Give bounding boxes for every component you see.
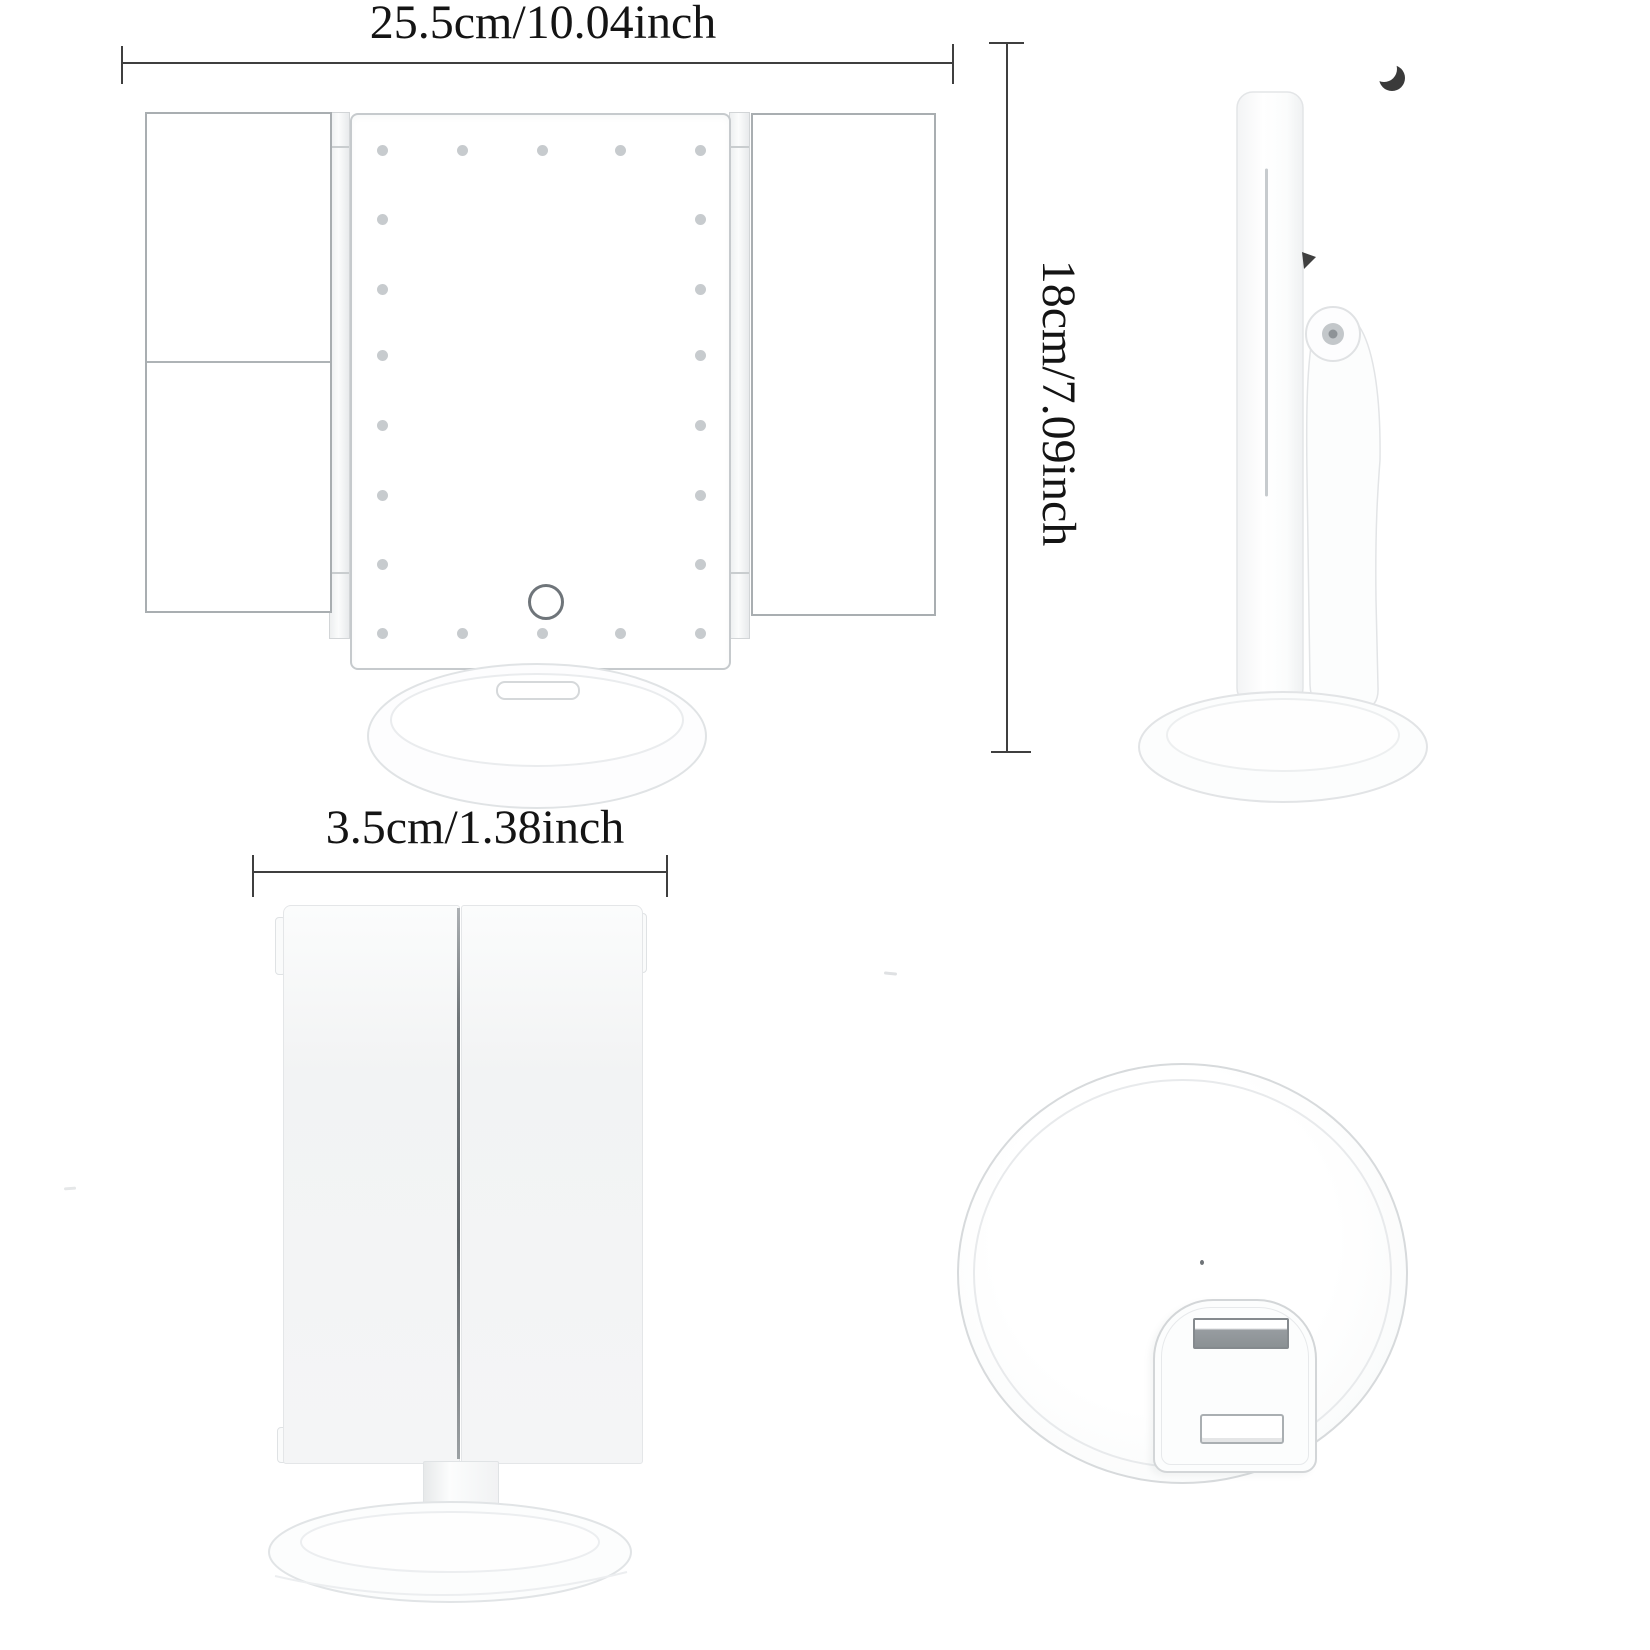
led-dot <box>537 628 548 639</box>
led-dot <box>695 214 706 225</box>
photo-artifact-speck <box>1200 1260 1204 1265</box>
led-dot <box>377 284 388 295</box>
hinge-pin-icon <box>730 146 749 148</box>
height-dimension-tick-top <box>989 42 1024 44</box>
right-fold-panel <box>751 113 936 616</box>
stand-bracket <box>1153 1299 1317 1473</box>
depth-dimension-line <box>253 871 668 873</box>
stand-arm <box>1307 311 1380 709</box>
height-dimension-label: 18cm/7.09inch <box>1033 260 1083 547</box>
bracket-upper-slot <box>1193 1318 1289 1349</box>
product-dimension-diagram: 25.5cm/10.04inch 18cm/7.09inch <box>0 0 1650 1650</box>
photo-artifact-wedge <box>1302 252 1316 269</box>
side-base-tray-rim <box>1167 699 1399 771</box>
led-dot <box>695 559 706 570</box>
side-profile <box>1120 55 1465 815</box>
depth-dimension-tick-left <box>252 855 254 897</box>
height-dimension-line <box>1006 43 1008 753</box>
folded-left-panel <box>283 905 460 1464</box>
led-dot <box>377 559 388 570</box>
bracket-lower-slot <box>1200 1414 1284 1444</box>
folded-base <box>255 1498 645 1606</box>
front-base-slot <box>497 682 579 699</box>
width-dimension-label: 25.5cm/10.04inch <box>370 0 717 48</box>
led-dot <box>377 145 388 156</box>
led-dot <box>457 145 468 156</box>
width-dimension-tick-right <box>952 44 954 84</box>
width-dimension-tick-left <box>121 46 123 84</box>
led-dot <box>377 628 388 639</box>
photo-artifact-smudge <box>884 971 897 975</box>
led-dot <box>695 284 706 295</box>
led-dot <box>377 420 388 431</box>
led-dot <box>377 350 388 361</box>
depth-dimension-label: 3.5cm/1.38inch <box>326 803 625 853</box>
left-fold-panel <box>145 112 332 613</box>
led-dot <box>695 145 706 156</box>
touch-button <box>528 584 564 620</box>
height-dimension-tick-bottom <box>991 751 1031 753</box>
photo-artifact-smudge <box>64 1187 76 1191</box>
hinge-pin-icon <box>330 572 349 574</box>
photo-artifact-crescent-mask <box>1371 56 1397 82</box>
center-mirror-panel <box>350 113 731 670</box>
led-dot <box>537 145 548 156</box>
led-dot <box>615 145 626 156</box>
led-dot <box>695 420 706 431</box>
mirror-slab-side <box>1237 92 1303 704</box>
folded-right-panel <box>461 905 643 1464</box>
led-dot <box>615 628 626 639</box>
hinge-pin-icon <box>730 572 749 574</box>
led-dot <box>377 490 388 501</box>
width-dimension-line <box>122 62 953 64</box>
led-dot <box>695 350 706 361</box>
hinge-pin-icon <box>330 146 349 148</box>
led-dot <box>377 214 388 225</box>
hinge-pivot-screw <box>1329 330 1338 339</box>
left-panel-divider <box>147 361 330 363</box>
led-dot <box>695 628 706 639</box>
led-dot <box>457 628 468 639</box>
folded-center-seam <box>457 908 460 1459</box>
depth-dimension-tick-right <box>666 855 668 897</box>
led-dot <box>695 490 706 501</box>
left-hinge <box>329 112 350 639</box>
right-hinge <box>729 112 750 639</box>
front-base <box>347 650 727 815</box>
folded-base-tray-rim <box>301 1512 599 1572</box>
